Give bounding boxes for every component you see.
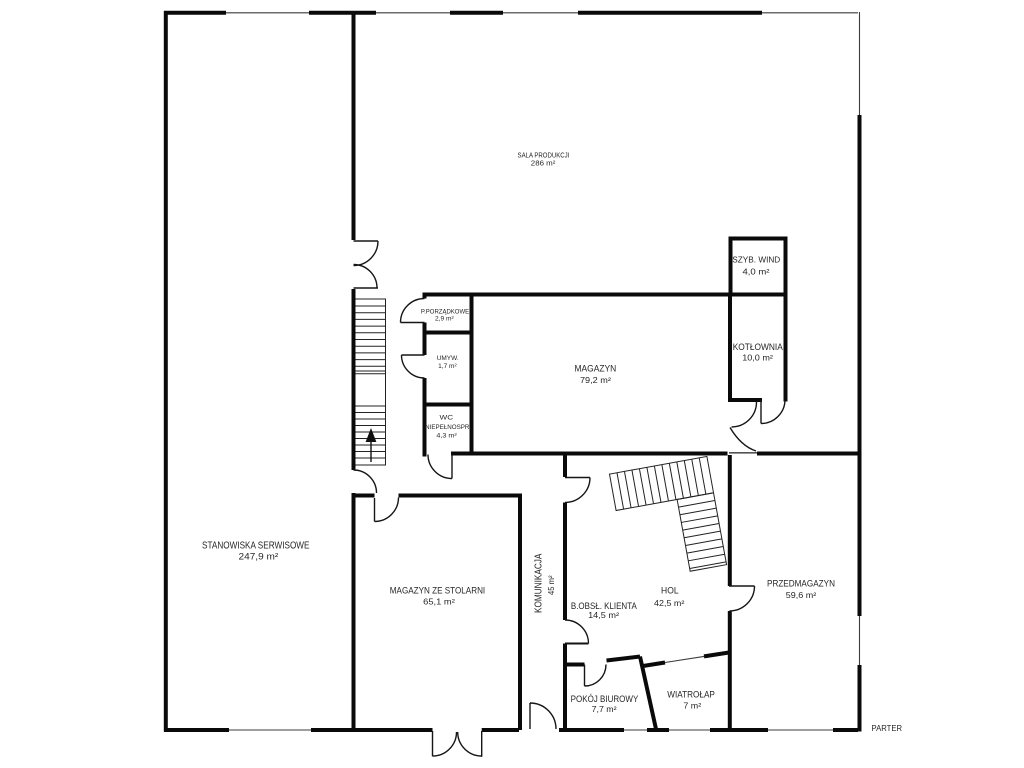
- svg-text:KOMUNIKACJA: KOMUNIKACJA: [533, 554, 544, 613]
- svg-text:NIEPEŁNOSPR.: NIEPEŁNOSPR.: [425, 424, 471, 431]
- svg-text:WC: WC: [440, 414, 454, 422]
- svg-text:4,0 m²: 4,0 m²: [743, 267, 770, 276]
- svg-text:KOTŁOWNIA: KOTŁOWNIA: [733, 342, 783, 352]
- svg-text:2,9 m²: 2,9 m²: [435, 315, 454, 322]
- svg-text:14,5 m²: 14,5 m²: [588, 610, 619, 620]
- svg-text:7,7 m²: 7,7 m²: [592, 704, 617, 714]
- svg-text:45 m²: 45 m²: [547, 575, 556, 595]
- svg-text:1,7 m²: 1,7 m²: [438, 363, 457, 370]
- svg-text:HOL: HOL: [661, 585, 679, 595]
- svg-text:PRZEDMAGAZYN: PRZEDMAGAZYN: [767, 578, 835, 589]
- svg-text:SZYB. WIND: SZYB. WIND: [732, 254, 780, 264]
- svg-text:7 m²: 7 m²: [683, 701, 701, 711]
- svg-text:247,9 m²: 247,9 m²: [239, 552, 279, 562]
- svg-text:10,0 m²: 10,0 m²: [742, 353, 773, 363]
- svg-text:79,2 m²: 79,2 m²: [580, 375, 611, 385]
- svg-text:WIATROŁAP: WIATROŁAP: [667, 689, 715, 699]
- svg-text:MAGAZYN ZE STOLARNI: MAGAZYN ZE STOLARNI: [390, 585, 485, 596]
- svg-text:STANOWISKA SERWISOWE: STANOWISKA SERWISOWE: [202, 540, 310, 551]
- svg-text:P.PORZĄDKOWE: P.PORZĄDKOWE: [421, 308, 469, 315]
- svg-text:UMYW.: UMYW.: [437, 355, 459, 362]
- svg-text:65,1 m²: 65,1 m²: [423, 597, 455, 606]
- svg-text:59,6 m²: 59,6 m²: [786, 590, 817, 600]
- svg-text:MAGAZYN: MAGAZYN: [575, 363, 617, 373]
- svg-text:POKÓJ BIUROWY: POKÓJ BIUROWY: [571, 694, 639, 705]
- svg-text:286 m²: 286 m²: [531, 159, 556, 168]
- svg-text:PARTER: PARTER: [872, 724, 903, 733]
- svg-text:42,5 m²: 42,5 m²: [654, 598, 684, 608]
- svg-text:4,3 m²: 4,3 m²: [436, 433, 457, 439]
